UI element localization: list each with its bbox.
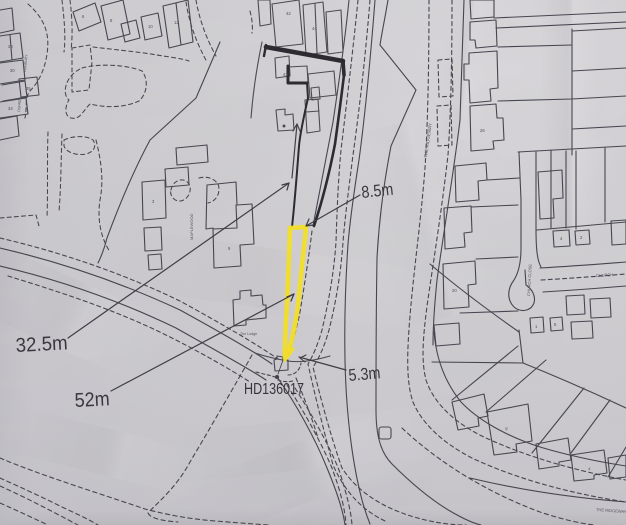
svg-text:The Lodge: The Lodge <box>240 332 257 336</box>
svg-text:8.5m: 8.5m <box>360 180 394 202</box>
svg-text:10: 10 <box>148 24 153 29</box>
svg-text:35: 35 <box>26 86 31 91</box>
svg-text:28: 28 <box>8 44 13 49</box>
svg-text:26: 26 <box>480 128 485 133</box>
svg-text:30: 30 <box>10 68 15 73</box>
svg-text:44: 44 <box>312 26 317 31</box>
svg-text:34: 34 <box>8 106 13 111</box>
svg-text:20: 20 <box>452 288 457 293</box>
svg-text:HD136017: HD136017 <box>244 381 304 398</box>
svg-text:42: 42 <box>286 11 291 16</box>
svg-text:12: 12 <box>174 20 179 25</box>
svg-text:MAPLEWOOD: MAPLEWOOD <box>189 213 194 240</box>
svg-text:32.5m: 32.5m <box>15 332 68 357</box>
svg-text:CHURCH: CHURCH <box>596 272 614 278</box>
svg-text:52m: 52m <box>74 388 110 412</box>
svg-text:5.3m: 5.3m <box>348 363 382 385</box>
svg-text:43: 43 <box>283 72 288 77</box>
